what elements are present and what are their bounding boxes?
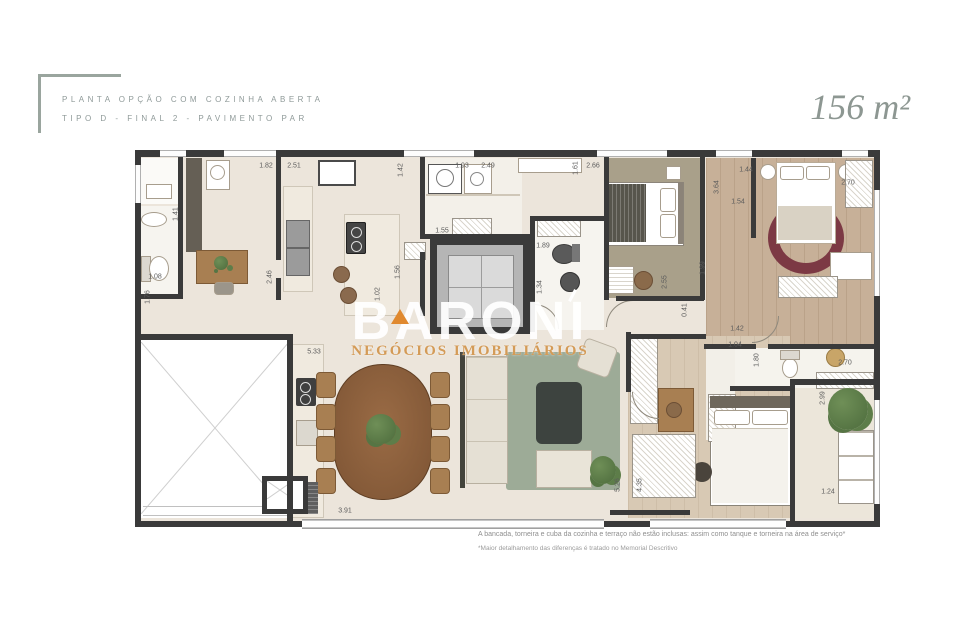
dimension-label: 1.42 [398, 163, 405, 177]
wall-office-kitchen-b [276, 278, 281, 300]
bedroom3-desk-chair [666, 402, 682, 418]
dimension-label: 1.44 [739, 167, 753, 174]
plan-title: PLANTA OPÇÃO COM COZINHA ABERTA TIPO D -… [62, 90, 323, 128]
living-chaise [536, 450, 592, 488]
dining-table-plant [366, 414, 396, 444]
dimension-label: 1.56 [395, 265, 402, 279]
wall-bedroom2-left [604, 152, 609, 300]
wall-bath-office [178, 152, 183, 296]
lavabo-sink [560, 272, 580, 292]
terrace-bench [838, 430, 874, 504]
bedroom3-headboard [710, 396, 790, 408]
dining-chair-r4 [430, 468, 450, 494]
kitchen-stool-1 [333, 266, 350, 283]
suite-blanket [778, 206, 832, 240]
dimension-label: 2.66 [586, 163, 600, 170]
dimension-label: 2.70 [838, 360, 852, 367]
dimension-label: 1.80 [754, 353, 761, 367]
wall-void-top [135, 334, 291, 340]
dimension-label: 5.33 [307, 349, 321, 356]
bedroom2-pillow-1 [660, 188, 676, 212]
wall-bath-bottom [135, 294, 183, 299]
bedroom3-pillow-1 [714, 410, 750, 425]
dining-chair-r3 [430, 436, 450, 462]
dimension-label: 1.89 [536, 243, 550, 250]
patio-door-living [302, 519, 604, 529]
kitchen-microwave [286, 248, 310, 276]
dimension-label: 1.42 [730, 326, 744, 333]
dimension-label: 1.08 [148, 274, 162, 281]
dining-chair-l2 [316, 404, 336, 430]
dimension-label: 1.41 [173, 207, 180, 221]
dining-cooktop-burner-2 [300, 394, 311, 405]
window-top-3 [404, 150, 474, 157]
dimension-label: 1.55 [435, 228, 449, 235]
bedroom2-side-table [634, 271, 653, 290]
dimension-label: 3.91 [338, 508, 352, 515]
window-left [135, 165, 141, 203]
dining-chair-l3 [316, 436, 336, 462]
suite-foot-bench [778, 276, 838, 298]
window-top-5 [716, 150, 752, 157]
dimension-label: 2.99 [820, 391, 827, 405]
plan-title-line1: PLANTA OPÇÃO COM COZINHA ABERTA [62, 90, 323, 109]
window-right-2 [874, 400, 880, 504]
bedroom2-blanket [608, 184, 646, 242]
bathroom-sink [141, 212, 167, 227]
dimension-label: 2.49 [481, 163, 495, 170]
footer-note-1: A bancada, torneira e cuba da cozinha e … [478, 531, 845, 538]
wall-void-right [287, 334, 293, 521]
living-sofa [466, 356, 508, 484]
cooktop-burner-2 [351, 241, 362, 252]
dimension-label: 1.82 [259, 163, 273, 170]
wall-kitchen-laundry-a [420, 152, 425, 238]
dimension-label: 1.54 [731, 199, 745, 206]
bedroom2-pillow-2 [660, 214, 676, 238]
wall-bottom-3 [786, 521, 880, 527]
dimension-label: 1.61 [573, 161, 580, 175]
dimension-label: 1.24 [821, 489, 835, 496]
office-chair [214, 282, 234, 295]
dimension-label: 3.64 [714, 180, 721, 194]
area-label: 156 m² [740, 86, 910, 128]
suite-pillow-2 [806, 166, 830, 180]
dimension-label: 0.41 [682, 303, 689, 317]
suite-pillow-1 [780, 166, 804, 180]
office-sink-bowl [210, 165, 225, 180]
laundry-sink-bowl [470, 172, 484, 186]
dimension-label: 2.51 [287, 163, 301, 170]
dimension-label: 2.55 [662, 275, 669, 289]
bedroom2-headboard [678, 182, 683, 244]
dimension-label: 2.70 [841, 180, 855, 187]
dimension-label: 4.35 [637, 478, 644, 492]
kitchen-oven [286, 220, 310, 248]
bedroom3-duvet [712, 428, 788, 503]
dimension-label: 5.26 [615, 478, 622, 492]
window-top-1 [160, 150, 186, 157]
office-plant [214, 256, 228, 270]
window-right-1 [874, 190, 880, 296]
laundry-counter-line [426, 194, 520, 196]
floor-plan-page: PLANTA OPÇÃO COM COZINHA ABERTA TIPO D -… [0, 0, 960, 640]
dining-chair-l4 [316, 468, 336, 494]
wall-bedroom3-top [628, 334, 706, 339]
window-top-6 [842, 150, 868, 157]
window-top-2 [224, 150, 276, 157]
wall-office-kitchen-a [276, 152, 281, 260]
duct-1 [537, 219, 581, 237]
terrace-plant [828, 388, 868, 430]
wall-suite-bottom-b [768, 344, 880, 349]
laundry-tub-terrace [146, 184, 172, 199]
suite-nightstand-1 [760, 164, 776, 180]
wall-bedroom3-bottom-stub [610, 510, 690, 515]
bedroom2-nightstand [666, 166, 681, 180]
wall-bottom-2 [604, 521, 650, 527]
dimension-label: 1.99 [700, 261, 707, 275]
lavabo-toilet-tank [572, 244, 580, 262]
living-coffee-table [536, 382, 582, 444]
wall-lavabo-top [530, 216, 606, 221]
dining-chair-r2 [430, 404, 450, 430]
dining-cooktop-burner-1 [300, 382, 311, 393]
wall-terrace-top [790, 379, 880, 385]
watermark-triangle-icon [391, 309, 409, 324]
dining-sink [296, 420, 318, 446]
dimension-label: 1.04 [728, 342, 742, 349]
dimension-label: 1.76 [145, 290, 152, 304]
dining-chair-r1 [430, 372, 450, 398]
washer-door [436, 169, 454, 187]
wall-bottom-1 [135, 521, 302, 527]
window-top-4 [597, 150, 667, 157]
living-plant [590, 456, 616, 484]
wall-bedroom2-bottom [616, 296, 704, 301]
living-partition [460, 352, 465, 488]
dimension-label: 1.93 [455, 163, 469, 170]
kitchen-sink-cabinet [318, 160, 356, 186]
cooktop-burner-1 [351, 227, 362, 238]
office-wardrobe [186, 158, 202, 252]
suitebath-toilet-bowl [782, 358, 798, 378]
dining-chair-l1 [316, 372, 336, 398]
patio-door-bedroom3 [650, 519, 786, 529]
watermark-subtitle: NEGÓCIOS IMOBILIÁRIOS [325, 343, 615, 360]
wall-suitebath-bottom [730, 386, 794, 391]
wall-bedroom2-right [700, 152, 705, 300]
plan-title-line2: TIPO D - FINAL 2 - PAVIMENTO PAR [62, 109, 323, 128]
dimension-label: 2.46 [267, 270, 274, 284]
suitebath-toilet-tank [780, 350, 800, 360]
void-duct-box [262, 476, 308, 514]
wall-living-bedroom3 [626, 332, 631, 392]
wall-terrace-left [790, 385, 795, 521]
footer-note-2: *Maior detalhamento das diferenças é tra… [478, 545, 677, 552]
bedroom3-pillow-2 [752, 410, 788, 425]
